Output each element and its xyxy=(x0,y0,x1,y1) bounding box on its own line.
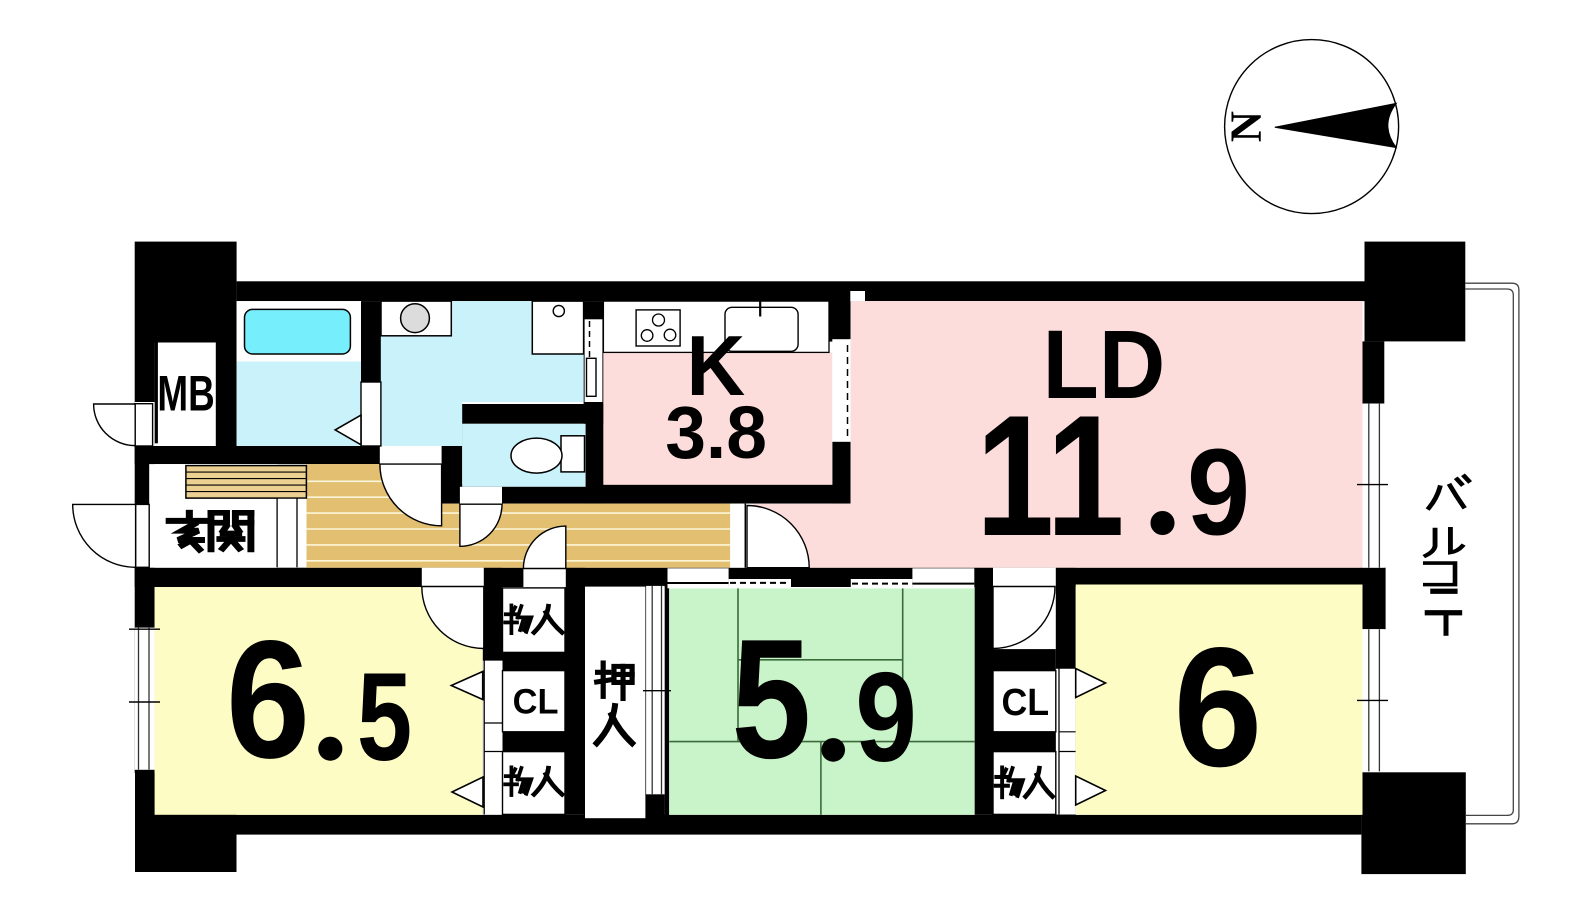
svg-text:3.8: 3.8 xyxy=(665,390,767,474)
svg-text:6: 6 xyxy=(226,605,310,793)
svg-text:MB: MB xyxy=(157,366,214,422)
svg-text:9: 9 xyxy=(1187,424,1250,561)
svg-text:5: 5 xyxy=(731,605,811,794)
svg-text:5: 5 xyxy=(357,647,412,787)
svg-text:9: 9 xyxy=(855,647,917,789)
svg-text:CL: CL xyxy=(1001,681,1049,723)
svg-text:CL: CL xyxy=(513,682,559,722)
svg-text:11: 11 xyxy=(976,380,1125,572)
svg-text:6: 6 xyxy=(1173,612,1262,801)
svg-text:N: N xyxy=(1222,111,1270,142)
